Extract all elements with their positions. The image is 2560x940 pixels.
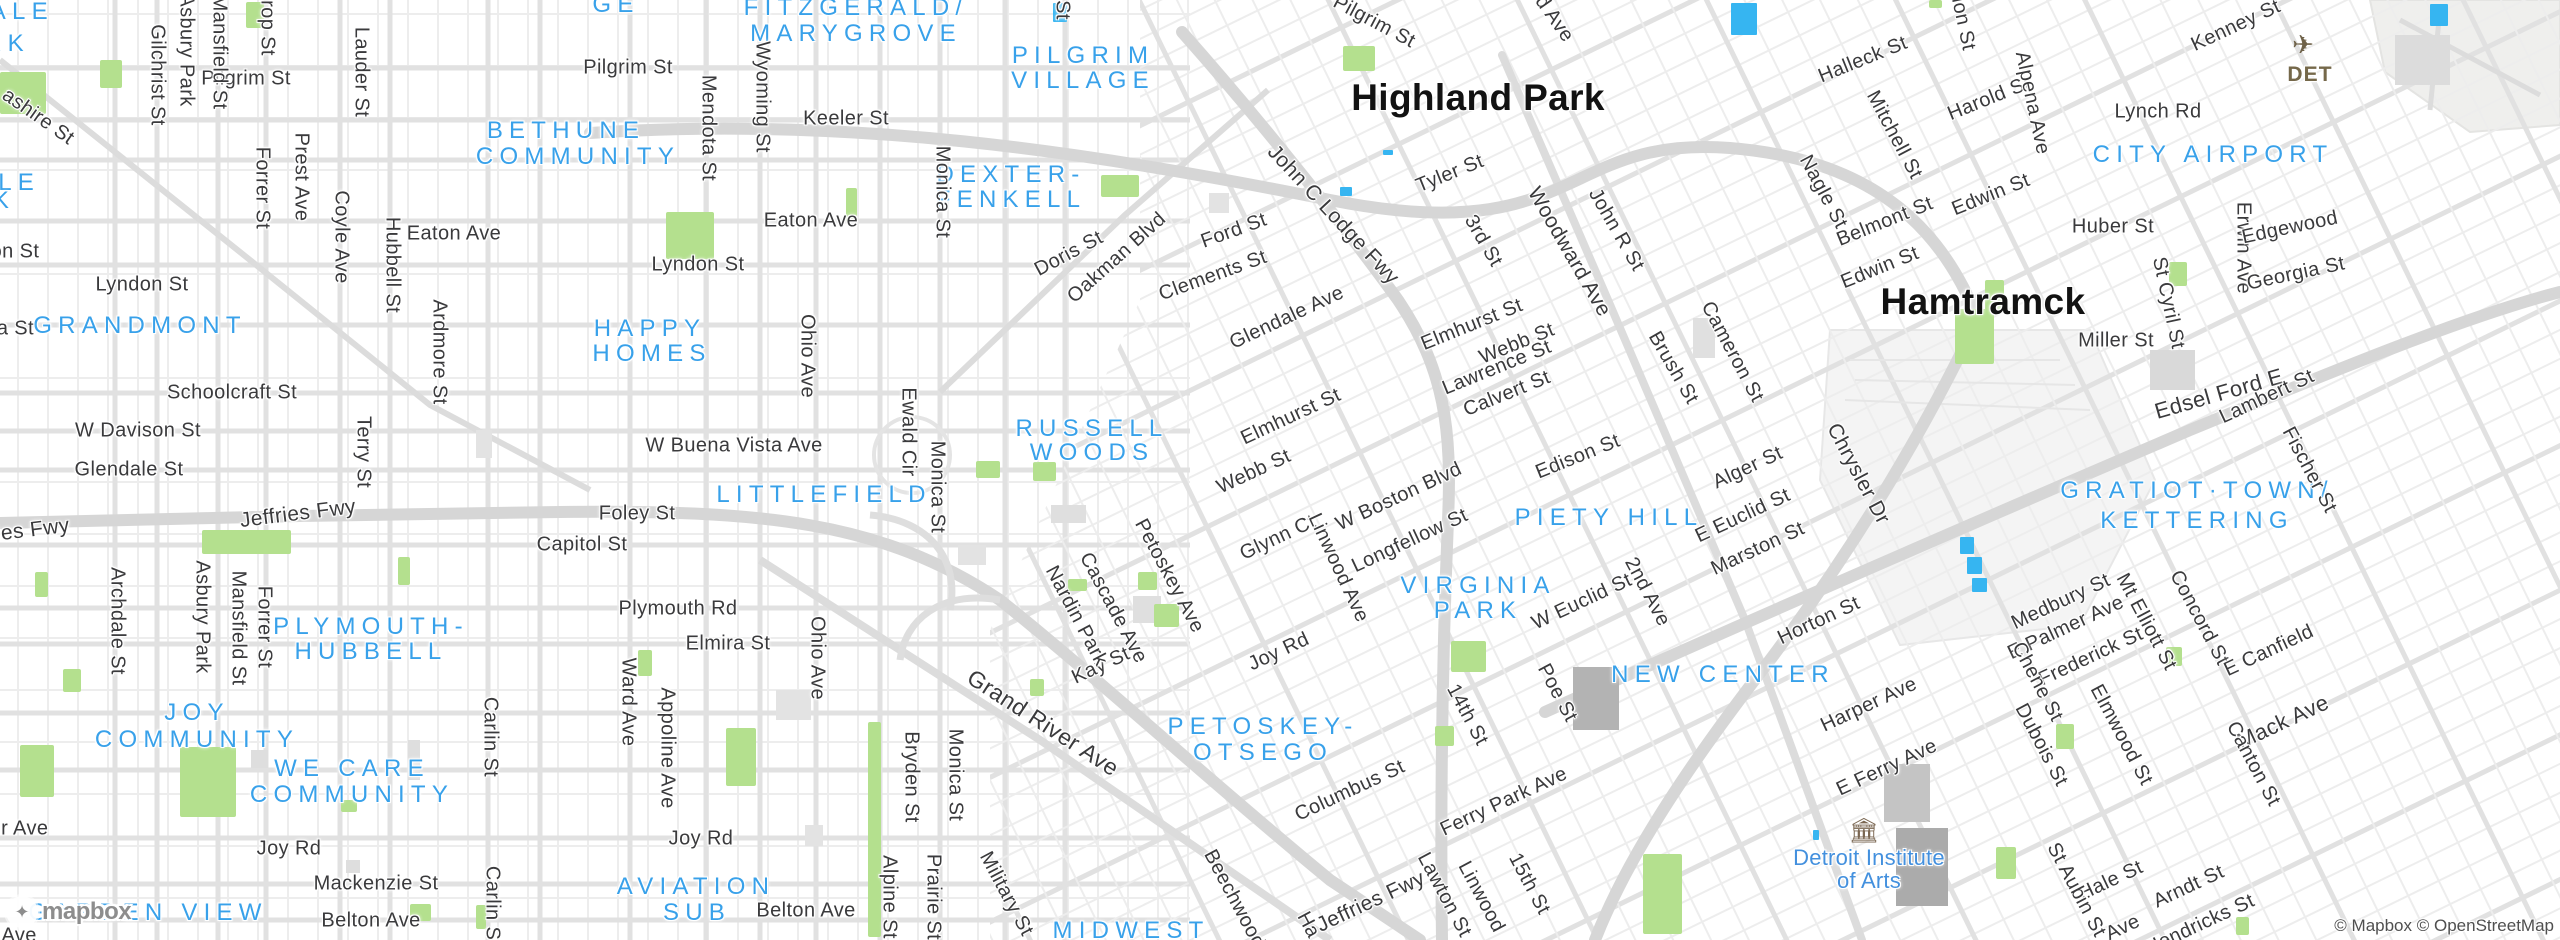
- street-label: Eaton Ave: [407, 223, 501, 246]
- park: [2056, 724, 2074, 749]
- neighborhood-label: MIDWEST: [1052, 917, 1209, 940]
- neighborhood-label: BETHUNE: [487, 117, 645, 145]
- neighborhood-label: FITZGERALD/: [744, 0, 969, 22]
- street-label: on St: [0, 241, 39, 264]
- neighborhood-label: GRANDMONT: [33, 312, 246, 340]
- neighborhood-label: COMMUNITY: [250, 781, 454, 809]
- street-label: Glendale St: [75, 459, 184, 482]
- street-label: Joy Rd: [257, 838, 322, 861]
- street-label: Prairie St: [922, 854, 945, 940]
- neighborhood-label: SUB: [663, 899, 731, 927]
- building: [805, 825, 823, 846]
- street-label: Lyndon St: [96, 274, 189, 297]
- street-label: Ward Ave: [617, 658, 640, 747]
- park: [35, 572, 48, 597]
- park: [20, 745, 54, 797]
- street-label: Elmira St: [686, 633, 771, 656]
- street-label: Pilgrim St: [583, 57, 673, 80]
- street-label: er Ave: [0, 818, 48, 841]
- street-label: Monica St: [926, 441, 949, 534]
- park: [1435, 726, 1454, 746]
- park: [100, 60, 122, 88]
- street-label: Mansfield St: [208, 0, 231, 109]
- street-label: Forrer St: [253, 586, 276, 669]
- neighborhood-label: AVIATION: [617, 873, 775, 901]
- street-label: Mendota St: [697, 75, 720, 181]
- neighborhood-label: KETTERING: [2100, 507, 2294, 535]
- neighborhood-label: PLYMOUTH-: [273, 613, 469, 641]
- park: [1996, 847, 2016, 879]
- neighborhood-label: DALE: [0, 0, 54, 26]
- airplane-icon: ✈: [2292, 30, 2314, 61]
- street-label: Lauder St: [350, 27, 373, 117]
- park: [1643, 854, 1682, 934]
- neighborhood-label: WOODS: [1030, 439, 1155, 467]
- street-label: Carlin St: [481, 866, 504, 940]
- building: [958, 545, 986, 565]
- street-label: Ewald Cir: [897, 387, 920, 476]
- street-label: Mansfield St: [227, 571, 250, 686]
- neighborhood-label: K: [0, 187, 15, 215]
- city-label: Highland Park: [1351, 77, 1605, 119]
- poi-label: DET: [2287, 63, 2332, 87]
- street-label: W Davison St: [75, 420, 201, 443]
- mapbox-logo-icon: ✦: [6, 896, 38, 928]
- neighborhood-label: PILGRIM: [1012, 42, 1154, 70]
- building: [346, 860, 360, 873]
- street-label: Carlin St: [479, 697, 502, 777]
- neighborhood-label: JOY: [164, 699, 229, 727]
- neighborhood-label: GE: [592, 0, 639, 19]
- street-label: ia St: [0, 318, 34, 341]
- water-feature: [1967, 557, 1982, 574]
- street-label: Plymouth Rd: [619, 598, 738, 621]
- neighborhood-label: GRATIOT·TOWN/: [2060, 477, 2334, 505]
- street-label: Wyoming St: [751, 41, 774, 153]
- water-feature: [1960, 537, 1974, 554]
- street-label: Terry St: [352, 416, 375, 488]
- water-feature: [1813, 830, 1819, 840]
- neighborhood-label: RK: [0, 30, 30, 58]
- neighborhood-label: MARYGROVE: [750, 20, 962, 48]
- street-label: Capitol St: [537, 534, 628, 557]
- street-label: Miller St: [2078, 330, 2154, 353]
- water-feature: [1340, 187, 1352, 196]
- street-label: Coyle Ave: [330, 190, 353, 283]
- street-label: Appoline Ave: [656, 687, 679, 808]
- poi-label: of Arts: [1837, 868, 1901, 894]
- map-attribution[interactable]: © Mapbox © OpenStreetMap: [2334, 916, 2554, 936]
- neighborhood-label: LITTLEFIELD: [716, 481, 931, 509]
- park: [666, 212, 714, 259]
- building: [1051, 505, 1086, 523]
- neighborhood-label: PARK: [1434, 597, 1523, 625]
- street-label: Monica St: [944, 729, 967, 822]
- neighborhood-label: PETOSKEY-: [1168, 713, 1359, 741]
- street-label: Asbury Park: [175, 0, 198, 107]
- neighborhood-label: COMMUNITY: [95, 726, 299, 754]
- building: [2150, 350, 2195, 390]
- neighborhood-label: VILLAGE: [1011, 67, 1155, 95]
- street-label: Hubbell St: [381, 217, 404, 313]
- water-feature: [1731, 3, 1757, 35]
- neighborhood-label: FENKELL: [936, 186, 1086, 214]
- street-label: Forrer St: [251, 147, 274, 230]
- street-label: Archdale St: [106, 567, 129, 675]
- street-label: Ohio Ave: [796, 314, 819, 398]
- mapbox-wordmark: mapbox: [42, 898, 131, 926]
- street-label: Huber St: [2072, 216, 2154, 239]
- neighborhood-label: PIETY HILL: [1515, 504, 1704, 532]
- park: [976, 461, 1000, 478]
- neighborhood-label: HOMES: [592, 340, 711, 368]
- water-feature: [2430, 4, 2448, 26]
- street-label: Ohio Ave: [806, 616, 829, 700]
- park: [202, 530, 291, 554]
- neighborhood-label: NEW CENTER: [1611, 661, 1835, 689]
- building: [476, 430, 492, 458]
- neighborhood-label: WE CARE: [274, 755, 430, 783]
- park: [63, 669, 81, 692]
- street-label: Mackenzie St: [314, 873, 439, 896]
- neighborhood-label: CITY AIRPORT: [2093, 141, 2334, 169]
- park: [180, 747, 236, 817]
- map-canvas[interactable]: Highland ParkHamtramckGEFITZGERALD/MARYG…: [0, 0, 2560, 940]
- park: [726, 728, 756, 786]
- neighborhood-label: HAPPY: [594, 315, 707, 343]
- building: [2395, 35, 2450, 85]
- park: [398, 557, 410, 585]
- street-label: Joy Rd: [669, 828, 734, 851]
- street-label: Keeler St: [803, 108, 889, 131]
- street-label: St: [1051, 0, 1074, 20]
- street-label: Belton Ave: [321, 910, 420, 933]
- water-feature: [1972, 578, 1987, 592]
- park: [1343, 46, 1375, 71]
- street-label: Asbury Park: [191, 560, 214, 673]
- street-label: Ardmore St: [428, 299, 451, 404]
- street-label: rop St: [256, 0, 279, 56]
- city-label: Hamtramck: [1881, 281, 2086, 323]
- neighborhood-label: VIRGINIA: [1400, 572, 1555, 600]
- street-label: Eaton Ave: [764, 210, 858, 233]
- street-label: Lyndon St: [652, 254, 745, 277]
- neighborhood-label: HUBBELL: [294, 638, 447, 666]
- neighborhood-label: DEXTER-: [936, 161, 1085, 189]
- street-label: Prest Ave: [290, 133, 313, 222]
- building: [1209, 193, 1229, 213]
- museum-icon: 🏛: [1849, 817, 1879, 846]
- park: [1030, 679, 1044, 696]
- water-feature: [1383, 150, 1393, 155]
- street-label: Lynch Rd: [2115, 101, 2202, 124]
- street-label: W Buena Vista Ave: [645, 435, 822, 458]
- park: [638, 650, 652, 676]
- street-label: Foley St: [599, 503, 676, 526]
- neighborhood-label: OTSEGO: [1193, 739, 1333, 767]
- street-label: Gilchrist St: [146, 24, 169, 125]
- street-label: Alpine St: [878, 855, 901, 939]
- park: [1929, 0, 1942, 8]
- mapbox-logo[interactable]: ✦ mapbox: [6, 896, 131, 928]
- street-label: Belton Ave: [756, 900, 855, 923]
- park: [1138, 572, 1157, 590]
- street-label: Schoolcraft St: [167, 382, 297, 405]
- street-label: Bryden St: [900, 731, 923, 822]
- park: [1451, 641, 1486, 672]
- park: [1101, 175, 1139, 197]
- neighborhood-label: COMMUNITY: [476, 143, 680, 171]
- street-label: Monica St: [931, 146, 954, 239]
